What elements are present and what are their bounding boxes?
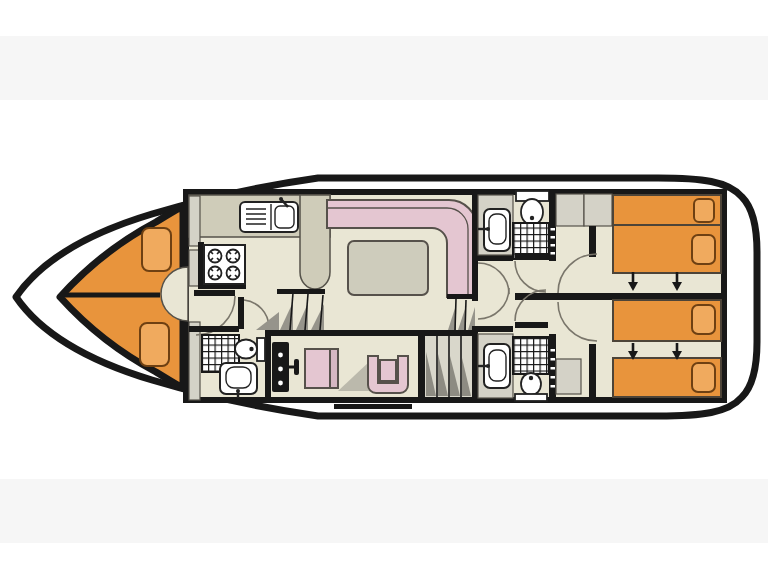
bucket-chair (368, 356, 408, 393)
bow-door-leaf (194, 290, 235, 296)
shower (513, 337, 549, 374)
saloon-edge-wall (268, 330, 424, 336)
chair-cushion (380, 360, 396, 381)
door-leaf (515, 322, 548, 328)
dining-table (348, 241, 428, 295)
door-leaf (515, 253, 548, 259)
bathroom-door-leaf (238, 297, 244, 329)
wardrobe (584, 194, 612, 226)
toilet (235, 338, 265, 361)
galley-cabinet (189, 196, 200, 246)
pillow (692, 235, 715, 264)
pillow (142, 228, 171, 271)
bottom-gray-band (0, 479, 768, 543)
boat-floor-plan-screenshot (0, 0, 768, 576)
side-cabinet (189, 322, 200, 400)
cabin-divider-wall (515, 293, 724, 300)
gangway-mark (334, 404, 412, 409)
top-gray-band (0, 36, 768, 100)
instrument-panel (272, 342, 289, 392)
pillow (692, 363, 715, 392)
cabinet (556, 359, 581, 394)
counter-peninsula (300, 195, 330, 289)
helm-staircase (418, 330, 477, 397)
wardrobe (556, 194, 584, 226)
pillow (140, 323, 169, 366)
sink-with-drainer (240, 197, 298, 232)
seat-backrest (330, 349, 338, 388)
pillow (692, 305, 715, 334)
washbasin (220, 363, 257, 398)
deck-plan-canvas (0, 0, 768, 576)
pilot-seat (305, 349, 338, 388)
pillow (694, 199, 714, 222)
stove-4-burners (204, 245, 245, 284)
bathroom-wall (189, 326, 239, 332)
